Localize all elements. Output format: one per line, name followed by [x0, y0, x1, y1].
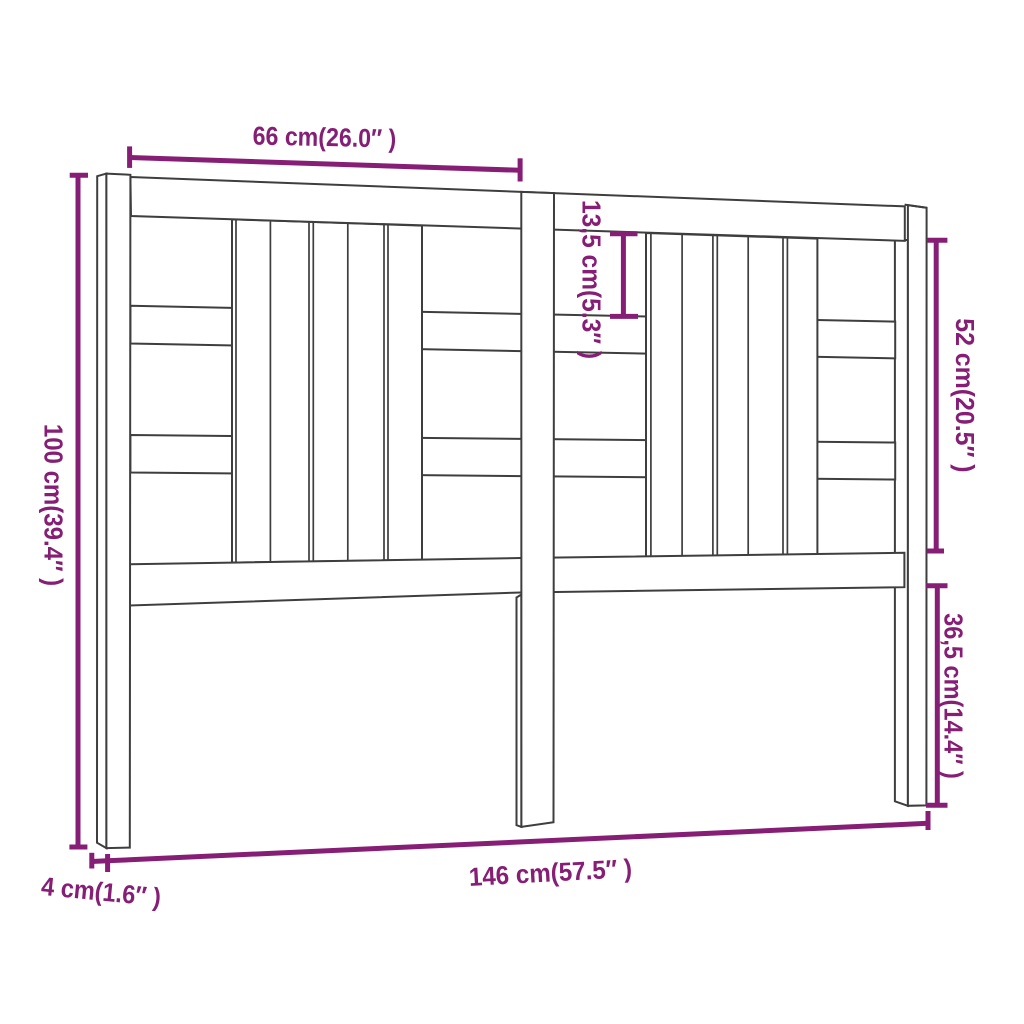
- svg-text:36,5 cm(14.4″ ): 36,5 cm(14.4″ ): [938, 613, 966, 779]
- svg-text:52 cm(20.5″ ): 52 cm(20.5″ ): [950, 318, 979, 472]
- svg-text:66 cm(26.0″ ): 66 cm(26.0″ ): [252, 122, 396, 154]
- svg-text:13,5 cm(5.3″ ): 13,5 cm(5.3″ ): [576, 200, 605, 359]
- svg-text:100 cm(39.4″ ): 100 cm(39.4″ ): [38, 424, 67, 586]
